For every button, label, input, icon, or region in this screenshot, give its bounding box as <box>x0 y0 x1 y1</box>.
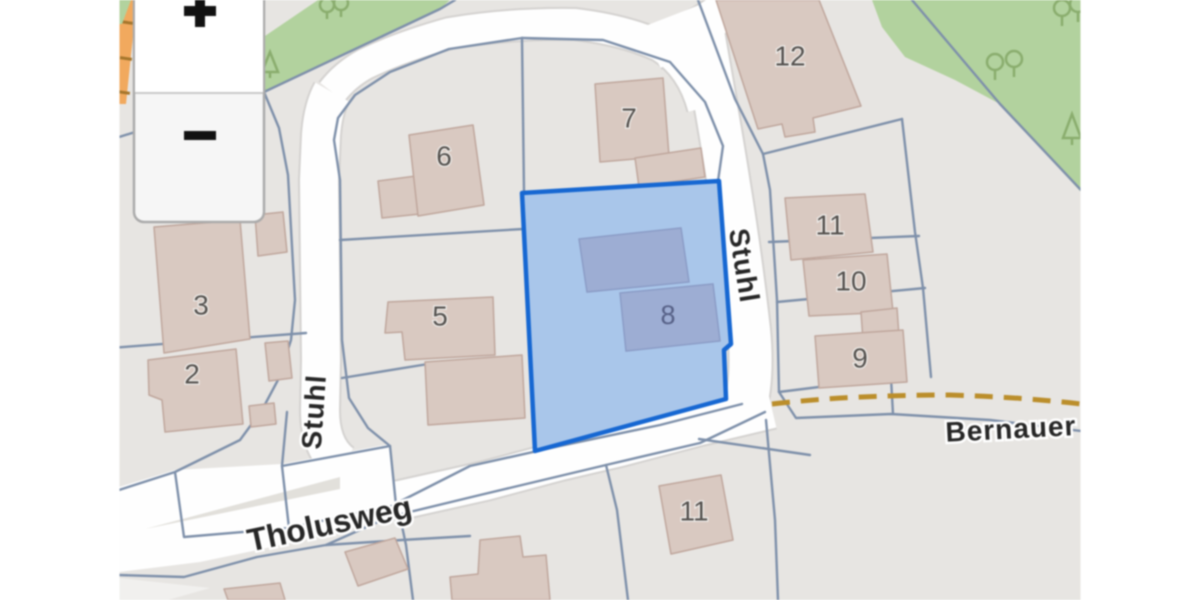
svg-text:9: 9 <box>852 342 868 373</box>
svg-text:3: 3 <box>193 289 209 320</box>
svg-text:2: 2 <box>184 358 200 389</box>
svg-text:8: 8 <box>660 300 675 330</box>
svg-text:5: 5 <box>432 300 448 331</box>
svg-text:11: 11 <box>815 209 844 240</box>
svg-text:Stuhl: Stuhl <box>296 373 332 450</box>
svg-text:7: 7 <box>621 102 637 133</box>
svg-text:12: 12 <box>774 40 805 71</box>
svg-text:11: 11 <box>679 495 708 526</box>
svg-text:6: 6 <box>436 140 452 171</box>
svg-text:10: 10 <box>835 265 866 296</box>
